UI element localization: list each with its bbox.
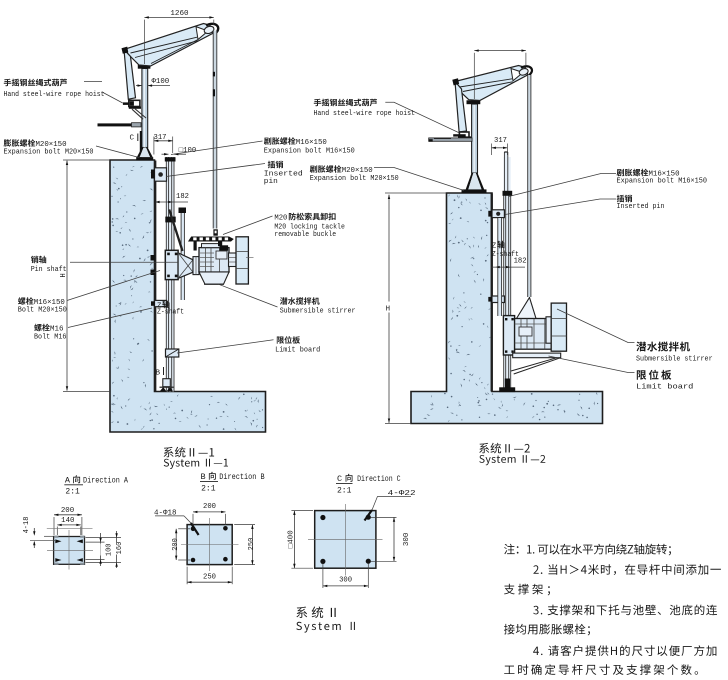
svg-text:A: A <box>65 476 71 486</box>
svg-text:4-Φ18: 4-Φ18 <box>154 510 177 518</box>
svg-text:Limit board: Limit board <box>636 384 693 392</box>
svg-text:Limit board: Limit board <box>275 347 320 355</box>
svg-text:Bolt M20×150: Bolt M20×150 <box>18 307 67 315</box>
svg-text:300: 300 <box>339 576 352 584</box>
svg-text:B: B <box>156 370 161 378</box>
svg-text:160: 160 <box>116 542 124 555</box>
svg-text:2:1: 2:1 <box>65 487 80 496</box>
svg-text:Expansion bolt M16×150: Expansion bolt M16×150 <box>264 148 355 156</box>
svg-text:Hand steel-wire rope hoist: Hand steel-wire rope hoist <box>4 91 105 99</box>
svg-text:M20: M20 <box>274 215 287 223</box>
svg-text:200: 200 <box>203 503 216 511</box>
svg-text:Expansion bolt M16×150: Expansion bolt M16×150 <box>617 178 708 186</box>
svg-text:200: 200 <box>61 507 74 515</box>
svg-text:2:1: 2:1 <box>201 485 216 494</box>
svg-text:C: C <box>130 135 135 143</box>
svg-text:140: 140 <box>61 517 74 525</box>
svg-text:Expansion bolt M20×150: Expansion bolt M20×150 <box>310 175 399 183</box>
svg-text:C: C <box>337 474 342 484</box>
svg-text:300: 300 <box>403 532 411 546</box>
svg-text:Submersible stirrer: Submersible stirrer <box>280 308 356 316</box>
svg-text:pin: pin <box>264 178 278 186</box>
svg-text:4-18: 4-18 <box>23 517 31 534</box>
svg-text:317: 317 <box>494 137 507 145</box>
svg-text:M16×150: M16×150 <box>296 139 327 147</box>
svg-text:Hand steel-wire rope hoist: Hand steel-wire rope hoist <box>314 110 416 118</box>
svg-text:182: 182 <box>176 193 189 201</box>
svg-text:Submersible stirrer: Submersible stirrer <box>636 356 713 364</box>
svg-text:Bolt M16: Bolt M16 <box>34 334 67 342</box>
svg-text:Pin shaft: Pin shaft <box>31 266 67 274</box>
svg-text:Φ100: Φ100 <box>152 78 170 86</box>
svg-text:Inserted pin: Inserted pin <box>617 203 665 211</box>
svg-text:2:1: 2:1 <box>337 487 352 496</box>
svg-text:M16: M16 <box>50 326 64 334</box>
svg-text:Z-shaft: Z-shaft <box>157 309 184 317</box>
svg-text:B: B <box>201 472 206 482</box>
svg-text:Z-shaft: Z-shaft <box>492 251 519 259</box>
svg-text:Direction C: Direction C <box>357 475 401 484</box>
svg-text:M20×150: M20×150 <box>342 167 373 175</box>
svg-text:100: 100 <box>106 543 114 556</box>
svg-text:removable buckle: removable buckle <box>274 231 336 239</box>
svg-text:Direction B: Direction B <box>219 473 265 482</box>
svg-text:4-Φ22: 4-Φ22 <box>388 490 416 498</box>
svg-text:Direction A: Direction A <box>83 477 128 486</box>
svg-text:250: 250 <box>203 574 216 582</box>
svg-text:Expansion bolt M20×150: Expansion bolt M20×150 <box>4 149 94 157</box>
svg-text:Z: Z <box>492 243 497 251</box>
svg-text:H: H <box>386 306 390 314</box>
